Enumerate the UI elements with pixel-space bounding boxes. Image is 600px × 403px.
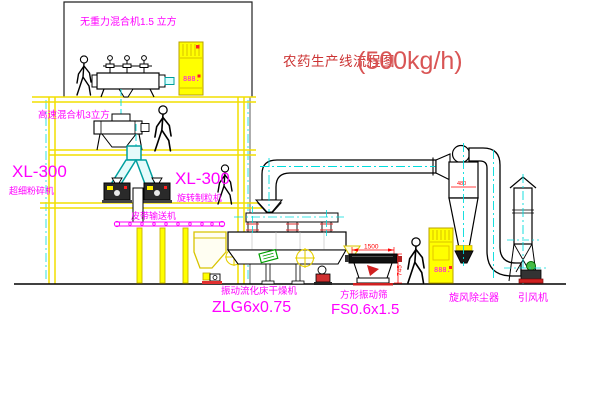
indicator-light (449, 266, 452, 269)
dimension-text-745: 745 (397, 265, 404, 276)
label-fan: 引风机 (518, 291, 548, 304)
cabinet-2-display: 888. (434, 266, 451, 274)
label-sieve-name: 方形振动筛 (340, 289, 388, 301)
label-dryer-model: ZLG6x0.75 (212, 299, 291, 316)
label-gravity-mixer: 无重力混合机1.5 立方 (80, 15, 177, 28)
feed-pump (202, 273, 222, 284)
label-belt-conveyor: 皮带输送机 (131, 210, 176, 221)
label-granulator-model: XL-300 (175, 169, 230, 188)
dimension-text-1500: 1500 (364, 244, 379, 251)
vibrating-sieve (345, 254, 402, 286)
granulator-left (102, 178, 132, 203)
label-dryer-name: 振动流化床干燥机 (221, 285, 298, 297)
control-cabinet-2: 888. (429, 228, 453, 283)
label-cyclone: 旋风除尘器 (449, 291, 499, 304)
cabinet-1-display: 888. (183, 75, 200, 83)
exhaust-duct (256, 158, 450, 213)
indicator-light (198, 75, 201, 78)
dryer-motor (314, 266, 332, 285)
label-granulator-name: 旋转制粒机 (177, 192, 222, 203)
cad-drawing-canvas: 888. (0, 0, 600, 403)
dimension-text-480: 480 (457, 181, 466, 187)
worker-figure-top-floor (77, 56, 91, 95)
drawing-title-capacity: (500kg/h) (357, 47, 463, 75)
gravity-mixer-machine (92, 56, 174, 97)
process-flow-diagram: 888. (0, 0, 600, 403)
label-mill-name: 超细粉碎机 (9, 185, 54, 196)
worker-figure-ground (408, 238, 424, 283)
label-high-speed-mixer: 高速混合机3立方 (38, 109, 110, 121)
label-sieve-model: FS0.6x1.5 (331, 301, 399, 318)
label-mill-model: XL-300 (12, 162, 67, 181)
control-cabinet-1: 888. (179, 42, 203, 95)
worker-figure-floor-2 (155, 106, 171, 151)
indicator-light (196, 45, 200, 49)
